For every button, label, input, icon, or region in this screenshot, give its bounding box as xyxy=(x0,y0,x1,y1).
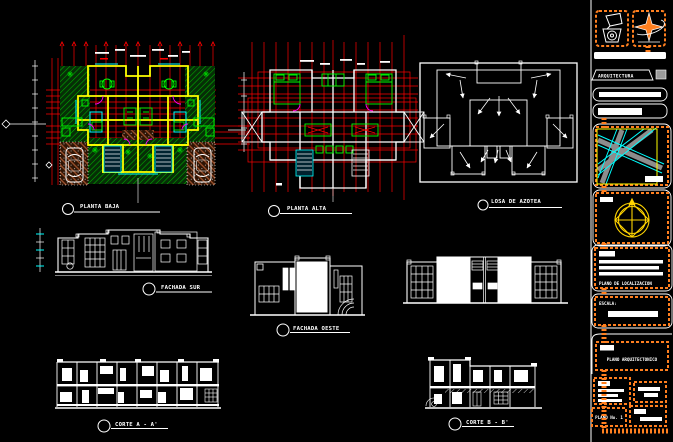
view-title: PLANTA BAJA xyxy=(80,204,120,210)
location-map-panel[interactable] xyxy=(593,124,671,188)
location-caption: PLANO DE LOCALIZACION xyxy=(599,281,652,286)
drawing-planta-alta[interactable] xyxy=(228,35,424,202)
view-title: CORTE A - A' xyxy=(115,422,158,428)
titleblock-bar xyxy=(594,52,666,59)
view-label-planta-baja: PLANTA BAJA xyxy=(63,204,161,215)
view-title: LOSA DE AZOTEA xyxy=(491,199,541,205)
view-label-losa-azotea: LOSA DE AZOTEA xyxy=(478,199,562,210)
sheet-number: PLANO No. 1 xyxy=(595,415,623,420)
view-label-corte-b: CORTE B - B' xyxy=(449,418,514,430)
walls xyxy=(262,70,404,188)
arquitectura-banner: ARQUITECTURA xyxy=(592,70,666,80)
banner-text: ARQUITECTURA xyxy=(598,74,634,80)
cad-canvas[interactable]: PLANTA BAJA PLANTA ALTA LOSA DE AZOTEA F… xyxy=(0,0,673,442)
mixer-logo-icon xyxy=(603,14,622,43)
location-info-panel: PLANO DE LOCALIZACION xyxy=(592,245,672,291)
view-title: FACHADA OESTE xyxy=(293,326,339,332)
north-compass-icon xyxy=(615,199,649,237)
view-label-fachada-oeste: FACHADA OESTE xyxy=(277,324,350,336)
drawing-fachada-sur[interactable] xyxy=(36,228,212,276)
drawing-fachada-oeste[interactable] xyxy=(250,256,365,315)
drawing-planta-baja[interactable] xyxy=(2,42,250,203)
drawing-corte-a[interactable] xyxy=(55,359,221,408)
drawing-losa-azotea[interactable] xyxy=(420,61,577,182)
scale-label: ESCALA: xyxy=(599,301,617,306)
dim-text-smudges xyxy=(95,49,190,60)
sheet-title: PLANO ARQUITECTONICO xyxy=(607,357,658,362)
drawing-corte-b[interactable] xyxy=(425,357,542,408)
titleblock-field-bars xyxy=(593,88,667,118)
star-logo-icon xyxy=(635,13,664,42)
view-label-fachada-sur: FACHADA SUR xyxy=(143,283,212,295)
scale-panel: ESCALA: xyxy=(592,294,672,328)
drawing-fachada-norte[interactable] xyxy=(403,257,568,303)
titleblock[interactable]: ARQUITECTURA xyxy=(591,0,672,442)
sheet-title-panel: PLANO ARQUITECTONICO xyxy=(592,334,672,374)
site-map xyxy=(597,128,664,184)
view-title: CORTE B - B' xyxy=(466,420,509,426)
view-label-planta-alta: PLANTA ALTA xyxy=(269,206,353,217)
view-title: PLANTA ALTA xyxy=(287,206,327,212)
slope-arrows xyxy=(430,74,567,168)
banner-badge xyxy=(656,70,666,79)
dimension-arrows xyxy=(60,42,215,46)
view-title: FACHADA SUR xyxy=(161,285,201,291)
north-panel xyxy=(593,190,671,246)
view-label-corte-a: CORTE A - A' xyxy=(98,420,168,432)
cad-sheet[interactable]: PLANTA BAJA PLANTA ALTA LOSA DE AZOTEA F… xyxy=(0,0,673,442)
